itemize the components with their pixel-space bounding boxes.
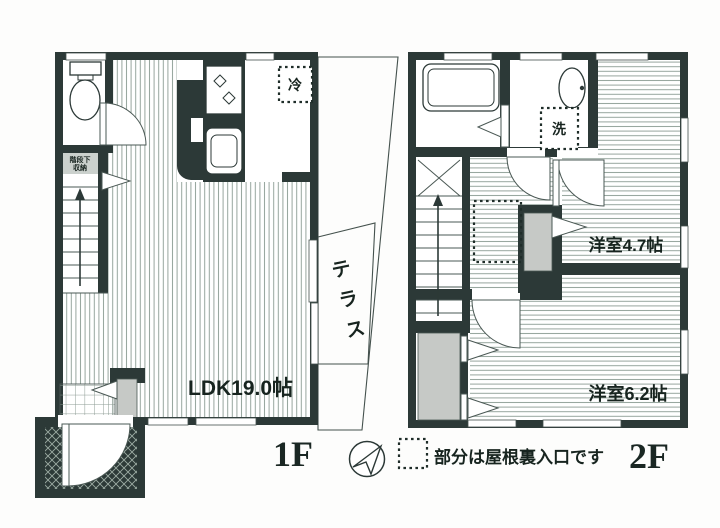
window-slot [196, 418, 256, 425]
bathroom-door [501, 105, 509, 147]
window-slot [246, 53, 274, 60]
terrace-sliding-window [309, 240, 317, 302]
toilet-icon [70, 80, 100, 120]
window-slot [148, 418, 188, 425]
understair-storage-label: 階段下 [70, 155, 91, 164]
hall-floor [470, 205, 518, 289]
floor2-label: 2F [629, 436, 669, 476]
shoe-cabinet [117, 379, 137, 420]
room-bathroom [423, 64, 499, 111]
terrace-label: テ ラ ス [330, 258, 367, 342]
legend: 部分は屋根裏入口です [399, 439, 604, 468]
room-6-2-label: 洋室6.2帖 [588, 383, 667, 404]
window-slot [681, 330, 688, 374]
window-slot [596, 53, 648, 60]
entrance-area [35, 368, 145, 498]
window-slot [468, 420, 516, 427]
compass-icon [350, 442, 385, 477]
room-4-7-label: 洋室4.7帖 [589, 235, 664, 255]
window-slot [66, 53, 106, 60]
floor1-label: 1F [273, 434, 313, 474]
terrace-sliding-window [311, 303, 318, 364]
kitchen-pass-through [191, 118, 203, 142]
svg-text:テ: テ [330, 258, 353, 282]
window-slot [681, 118, 688, 162]
window-slot [520, 53, 562, 60]
floor2-plan: 洗 [408, 52, 688, 476]
room-western-6-2-floor [562, 277, 680, 300]
fridge-label: 冷 [288, 77, 302, 93]
legend-attic-box [399, 439, 427, 468]
svg-text:ス: ス [344, 318, 367, 342]
window-slot [543, 420, 621, 427]
window-slot [681, 226, 688, 268]
svg-text:ラ: ラ [337, 288, 360, 312]
toilet-tank-icon [70, 62, 101, 75]
understair-storage-label: 収納 [73, 163, 87, 172]
floorplan-page: 冷 階段下 収納 [0, 0, 720, 528]
stove-icon [206, 66, 242, 114]
window-slot [444, 53, 492, 60]
ldk-label: LDK19.0帖 [188, 377, 293, 400]
floorplan-canvas: 冷 階段下 収納 [0, 0, 720, 528]
washer-label: 洗 [552, 121, 566, 137]
floor1-plan: 冷 階段下 収納 [35, 52, 398, 498]
bathtub-icon [423, 64, 499, 111]
legend-note: 部分は屋根裏入口です [434, 447, 604, 467]
lot-boundary-line [318, 57, 398, 430]
